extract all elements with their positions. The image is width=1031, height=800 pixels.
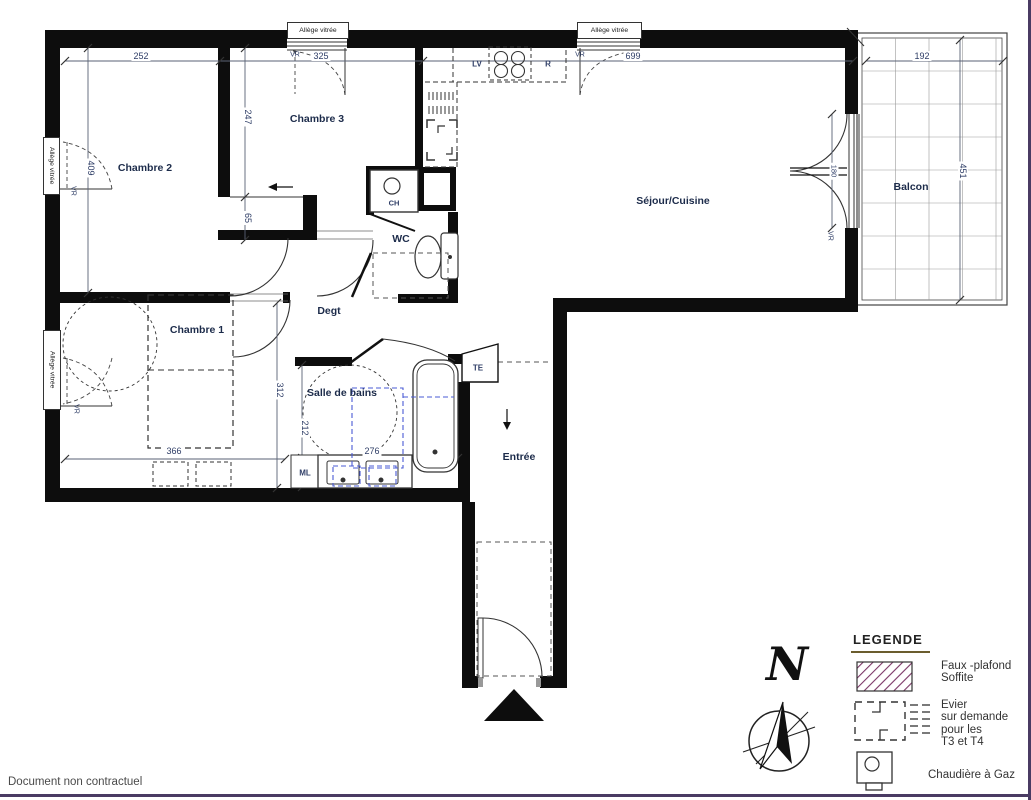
label-vr-balcony: VR <box>827 231 834 241</box>
legend-title-underline <box>851 651 930 653</box>
label-chaudiere: CH <box>389 199 400 208</box>
room-label-sejour-cuisine: Séjour/Cuisine <box>636 195 710 207</box>
room-label-salle-de-bains: Salle de bains <box>307 387 377 399</box>
toilet-button <box>449 256 452 259</box>
optional-sink-symbol <box>427 92 457 160</box>
room-label-chambre1: Chambre 1 <box>170 324 224 336</box>
room-label-entree: Entrée <box>503 451 536 463</box>
compass-rose <box>743 702 815 771</box>
dim-276: 276 <box>362 446 381 456</box>
dim-325: 325 <box>311 51 330 61</box>
north-letter: N <box>766 637 808 691</box>
dimension-ticks <box>61 36 1007 492</box>
allege-vitree-box-left2: Allège vitrée <box>43 330 61 410</box>
chambre2-door-arc <box>230 238 288 296</box>
entree-arrow <box>503 422 511 430</box>
sdb-door-arc <box>383 339 455 361</box>
tub-faucet <box>433 450 437 454</box>
burner <box>512 65 525 78</box>
balcony-structure <box>857 33 1007 305</box>
dim-312: 312 <box>275 380 285 399</box>
placard-arrow <box>268 183 277 191</box>
dim-252: 252 <box>131 51 150 61</box>
page-border-bottom <box>0 794 1031 797</box>
legend-item-chaudiere: Chaudière à Gaz <box>928 769 1015 781</box>
sdb-turning-circle <box>303 365 397 459</box>
sdb-door-leaf <box>350 339 383 363</box>
dim-212: 212 <box>300 418 310 437</box>
room-label-chambre2: Chambre 2 <box>118 162 172 174</box>
balcony-door-arc-bottom <box>790 171 847 228</box>
faucet <box>341 478 345 482</box>
legend-title: LEGENDE <box>853 632 923 647</box>
technical-shaft <box>421 170 453 208</box>
dim-192: 192 <box>912 51 931 61</box>
burner <box>512 52 525 65</box>
chambre1-door-arc <box>233 300 290 357</box>
entry-door-jambs <box>478 678 541 687</box>
boiler-dial <box>384 178 400 194</box>
dim-65: 65 <box>243 211 253 225</box>
label-vr-window4: VR <box>73 404 80 414</box>
room-label-wc: WC <box>392 233 410 245</box>
label-tableau-electrique: TE <box>473 364 483 373</box>
dim-451: 451 <box>958 161 968 180</box>
dim-699: 699 <box>623 51 642 61</box>
legend-item-evier: Evier sur demande pour les T3 et T4 <box>941 699 1008 749</box>
bathroom-fixtures <box>291 360 458 488</box>
floorplan-drawing <box>0 0 1031 800</box>
faucet <box>379 478 383 482</box>
turning-circle <box>63 297 157 391</box>
wc-door-leaf <box>352 253 371 297</box>
pillow <box>153 462 188 486</box>
room-label-degagement: Degt <box>317 305 340 317</box>
burner <box>495 65 508 78</box>
pillow <box>196 462 231 486</box>
window-swings <box>63 50 634 406</box>
entry-door-arc <box>483 618 542 677</box>
evier-symbol-icon <box>855 702 930 740</box>
dim-366: 366 <box>164 446 183 456</box>
gas-boiler-icon <box>857 752 892 790</box>
label-vr-window1: VR <box>290 52 300 59</box>
label-vr-window2: VR <box>575 52 585 59</box>
allege-vitree-box-top1: Allège vitrée <box>287 22 349 39</box>
entry-door-leaf <box>478 618 483 678</box>
label-vr-window3: VR <box>70 186 77 196</box>
dim-balcony-door: 180 <box>830 163 839 180</box>
dim-247: 247 <box>243 107 253 126</box>
toilet-bowl <box>415 236 441 278</box>
balcony-tile-grid <box>862 38 1002 300</box>
legend-item-faux-plafond: Faux -plafond Soffite <box>941 660 1011 685</box>
label-lave-vaisselle: LV <box>472 60 482 69</box>
burner <box>495 52 508 65</box>
entrance-triangle <box>484 689 544 721</box>
window-leaves <box>60 48 580 406</box>
floorplan-page: Chambre 2 Chambre 3 Chambre 1 Séjour/Cui… <box>0 0 1031 800</box>
allege-vitree-box-top2: Allège vitrée <box>577 22 642 39</box>
disclaimer-text: Document non contractuel <box>8 776 142 788</box>
room-label-chambre3: Chambre 3 <box>290 113 344 125</box>
allege-vitree-box-left1: Allège vitrée <box>43 137 60 195</box>
hatch-swatch <box>857 662 912 691</box>
dim-409: 409 <box>86 158 96 177</box>
legend-icons <box>855 662 930 790</box>
wc-sloped-wall <box>370 214 415 231</box>
label-refrigerateur: R <box>545 60 551 69</box>
room-label-balcon: Balcon <box>893 181 928 193</box>
label-machine-a-laver: ML <box>299 469 311 478</box>
